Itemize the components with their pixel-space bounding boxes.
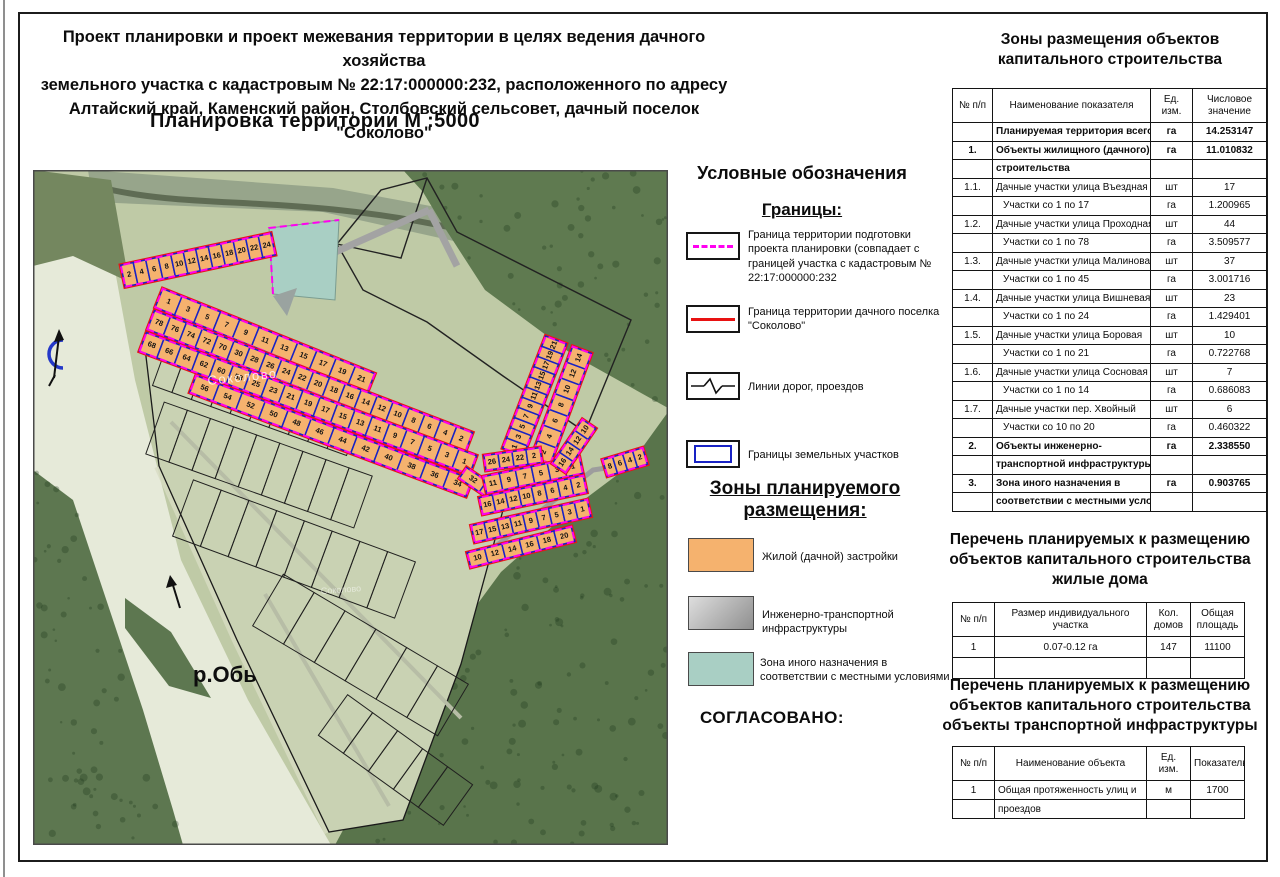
- table-cell: 6: [1193, 400, 1267, 419]
- table-cell: транспортной инфраструктуры: [993, 456, 1151, 475]
- table-cell: [1151, 160, 1193, 179]
- table-cell: Участки со 10 по 20: [993, 419, 1151, 438]
- table-cell: га: [1151, 234, 1193, 253]
- territory-map: 2468101214161820222413579111315171921787…: [33, 170, 668, 845]
- table-cell: [953, 197, 993, 216]
- transport-table: № п/пНаименование объектаЕд. изм.Показат…: [952, 746, 1245, 819]
- table-cell: 3.001716: [1193, 271, 1267, 290]
- table-row: Участки со 10 по 20га0.460322: [953, 419, 1267, 438]
- table-cell: Дачные участки улица Въездная: [993, 178, 1151, 197]
- table-cell: га: [1151, 345, 1193, 364]
- transport-table-title: Перечень планируемых к размещению объект…: [935, 676, 1265, 736]
- table-cell: [953, 456, 993, 475]
- table-cell: шт: [1151, 326, 1193, 345]
- settlement-boundary-symbol: [686, 305, 740, 333]
- map-canvas: 2468101214161820222413579111315171921787…: [33, 170, 668, 845]
- table-cell: га: [1151, 419, 1193, 438]
- table-cell: 7: [1193, 363, 1267, 382]
- other-purpose-zone: [269, 220, 339, 300]
- legend-boundaries-heading: Границы:: [672, 200, 932, 220]
- planning-boundary-symbol: [686, 232, 740, 260]
- table-cell: 2.: [953, 437, 993, 456]
- table-cell: га: [1151, 271, 1193, 290]
- table-row: строительства: [953, 160, 1267, 179]
- table-row: проездов: [953, 800, 1245, 819]
- settlement-boundary-label: Граница территории дачного поселка "Соко…: [748, 305, 953, 334]
- table-cell: проездов: [995, 800, 1147, 819]
- table-row: Участки со 1 по 78га3.509577: [953, 234, 1267, 253]
- column-header: Показатель: [1191, 747, 1245, 781]
- table-cell: 1: [953, 781, 995, 800]
- road-break-icon: [689, 374, 737, 398]
- blue-rect-icon: [694, 445, 732, 463]
- table-cell: [953, 271, 993, 290]
- table-cell: 23: [1193, 289, 1267, 308]
- table-cell: Объекты инженерно-: [993, 437, 1151, 456]
- table-row: транспортной инфраструктуры: [953, 456, 1267, 475]
- table-cell: Планируемая территория всего: [993, 123, 1151, 142]
- planning-boundary-label: Граница территории подготовки проекта пл…: [748, 228, 953, 285]
- table-cell: Участки со 1 по 45: [993, 271, 1151, 290]
- table-cell: [1147, 800, 1191, 819]
- column-header: Наименование объекта: [995, 747, 1147, 781]
- table-cell: [953, 493, 993, 512]
- zone-other-label: Зона иного назначения в соответствии с м…: [760, 656, 955, 685]
- column-header: № п/п: [953, 89, 993, 123]
- table-cell: м: [1147, 781, 1191, 800]
- zone-swatch-infrastructure: [688, 596, 754, 630]
- table-row: 10.07-0.12 га14711100: [953, 637, 1245, 658]
- table-cell: Участки со 1 по 78: [993, 234, 1151, 253]
- table-row: 1.7.Дачные участки пер. Хвойныйшт6: [953, 400, 1267, 419]
- table-row: 1.3.Дачные участки улица Малиноваяшт37: [953, 252, 1267, 271]
- table-cell: 3.: [953, 474, 993, 493]
- table-row: Участки со 1 по 17га1.200965: [953, 197, 1267, 216]
- column-header: Числовое значение: [1193, 89, 1267, 123]
- column-header: № п/п: [953, 747, 995, 781]
- parcel-number: 22: [515, 452, 525, 462]
- table-row: 3.Зона иного назначения вга0.903765: [953, 474, 1267, 493]
- table-cell: [1193, 493, 1267, 512]
- table-cell: 3.509577: [1193, 234, 1267, 253]
- river-label: р.Обь: [193, 662, 257, 687]
- table-cell: Участки со 1 по 14: [993, 382, 1151, 401]
- scan-edge-line: [3, 0, 5, 877]
- parcel-boundary-label: Границы земельных участков: [748, 448, 953, 462]
- column-header: Размер индивидуального участка: [995, 603, 1147, 637]
- table-cell: шт: [1151, 363, 1193, 382]
- table-cell: Общая протяженность улиц и: [995, 781, 1147, 800]
- table-cell: [1151, 456, 1193, 475]
- table-cell: 1.200965: [1193, 197, 1267, 216]
- table-row: Участки со 1 по 21га0.722768: [953, 345, 1267, 364]
- table-row: Участки со 1 по 14га0.686083: [953, 382, 1267, 401]
- table-cell: шт: [1151, 215, 1193, 234]
- table-cell: 17: [1193, 178, 1267, 197]
- table-cell: га: [1151, 308, 1193, 327]
- table-cell: 14.253147: [1193, 123, 1267, 142]
- table-row: 1.1.Дачные участки улица Въезднаяшт17: [953, 178, 1267, 197]
- table-cell: 0.903765: [1193, 474, 1267, 493]
- table-cell: 1.1.: [953, 178, 993, 197]
- table-cell: [1191, 800, 1245, 819]
- table-cell: 1.: [953, 141, 993, 160]
- table-row: 1.Объекты жилищного (дачного)га11.010832: [953, 141, 1267, 160]
- table-cell: 11.010832: [1193, 141, 1267, 160]
- table-cell: Участки со 1 по 21: [993, 345, 1151, 364]
- table-row: Участки со 1 по 24га1.429401: [953, 308, 1267, 327]
- houses-table-title: Перечень планируемых к размещению объект…: [935, 530, 1265, 590]
- table-cell: Дачные участки улица Проходная: [993, 215, 1151, 234]
- table-cell: 1.2.: [953, 215, 993, 234]
- column-header: Кол. домов: [1147, 603, 1191, 637]
- table-row: Планируемая территория всегога14.253147: [953, 123, 1267, 142]
- parcel-number: 26: [487, 456, 497, 466]
- table-cell: га: [1151, 141, 1193, 160]
- zones-heading: Зоны планируемого размещения:: [660, 478, 950, 522]
- table-cell: строительства: [993, 160, 1151, 179]
- houses-table: № п/пРазмер индивидуального участкаКол. …: [952, 602, 1245, 679]
- legend-heading: Условные обозначения: [672, 163, 932, 184]
- table-cell: [953, 419, 993, 438]
- red-line-icon: [691, 318, 735, 321]
- column-header: Наименование показателя: [993, 89, 1151, 123]
- table-cell: соответствии с местными условиями: [993, 493, 1151, 512]
- table-row: 1Общая протяженность улиц им1700: [953, 781, 1245, 800]
- table-row: 1.6.Дачные участки улица Сосноваяшт7: [953, 363, 1267, 382]
- table-cell: Дачные участки улица Боровая: [993, 326, 1151, 345]
- zone-swatch-other: [688, 652, 754, 686]
- table-cell: [953, 800, 995, 819]
- table-cell: 1.5.: [953, 326, 993, 345]
- zones-table: № п/пНаименование показателяЕд. изм.Числ…: [952, 88, 1267, 512]
- table-cell: Дачные участки улица Малиновая: [993, 252, 1151, 271]
- table-row: Участки со 1 по 45га3.001716: [953, 271, 1267, 290]
- table-cell: Дачные участки пер. Хвойный: [993, 400, 1151, 419]
- table-cell: шт: [1151, 289, 1193, 308]
- table-cell: 1.6.: [953, 363, 993, 382]
- zone-infrastructure-label: Инженерно-транспортной инфраструктуры: [762, 608, 967, 637]
- project-title-line1: Проект планировки и проект межевания тер…: [36, 26, 732, 74]
- project-title-line2: земельного участка с кадастровым № 22:17…: [36, 74, 732, 98]
- map-title: Планировка территории М :5000: [150, 110, 580, 133]
- table-cell: шт: [1151, 400, 1193, 419]
- table-row: 1.5.Дачные участки улица Бороваяшт10: [953, 326, 1267, 345]
- table-cell: 1.4.: [953, 289, 993, 308]
- table-cell: Дачные участки улица Вишневая: [993, 289, 1151, 308]
- column-header: № п/п: [953, 603, 995, 637]
- column-header: Общая площадь: [1191, 603, 1245, 637]
- table-cell: [1193, 160, 1267, 179]
- table-cell: [953, 234, 993, 253]
- table-cell: 1: [953, 637, 995, 658]
- table-cell: 11100: [1191, 637, 1245, 658]
- table-cell: Участки со 1 по 24: [993, 308, 1151, 327]
- table-row: 2.Объекты инженерно-га2.338550: [953, 437, 1267, 456]
- table-cell: 147: [1147, 637, 1191, 658]
- table-cell: 44: [1193, 215, 1267, 234]
- table-cell: [1151, 493, 1193, 512]
- column-header: Ед. изм.: [1147, 747, 1191, 781]
- roads-label: Линии дорог, проездов: [748, 380, 953, 394]
- table-row: соответствии с местными условиями: [953, 493, 1267, 512]
- table-cell: шт: [1151, 178, 1193, 197]
- table-cell: 0.722768: [1193, 345, 1267, 364]
- column-header: Ед. изм.: [1151, 89, 1193, 123]
- zone-swatch-residential: [688, 538, 754, 572]
- table-cell: га: [1151, 474, 1193, 493]
- table-cell: 0.460322: [1193, 419, 1267, 438]
- table-cell: [1193, 456, 1267, 475]
- table-cell: 1.429401: [1193, 308, 1267, 327]
- approved-label: СОГЛАСОВАНО:: [700, 708, 844, 728]
- table-cell: Объекты жилищного (дачного): [993, 141, 1151, 160]
- table-cell: Дачные участки улица Сосновая: [993, 363, 1151, 382]
- table-cell: 1.3.: [953, 252, 993, 271]
- parcel-boundary-symbol: [686, 440, 740, 468]
- table-cell: га: [1151, 123, 1193, 142]
- table-cell: [953, 345, 993, 364]
- table-row: 1.2.Дачные участки улица Проходнаяшт44: [953, 215, 1267, 234]
- table-cell: га: [1151, 197, 1193, 216]
- table-row: 1.4.Дачные участки улица Вишневаяшт23: [953, 289, 1267, 308]
- table-cell: га: [1151, 437, 1193, 456]
- table-cell: 37: [1193, 252, 1267, 271]
- table-cell: [953, 382, 993, 401]
- table-cell: га: [1151, 382, 1193, 401]
- table-cell: 1700: [1191, 781, 1245, 800]
- table-cell: 10: [1193, 326, 1267, 345]
- table-cell: шт: [1151, 252, 1193, 271]
- table-cell: Зона иного назначения в: [993, 474, 1151, 493]
- roads-symbol: [686, 372, 740, 400]
- table-cell: 0.07-0.12 га: [995, 637, 1147, 658]
- table-cell: [953, 308, 993, 327]
- plan-sheet: { "header": { "title_lines": [ "Проект п…: [0, 0, 1280, 877]
- table-cell: 2.338550: [1193, 437, 1267, 456]
- zones-table-title: Зоны размещения объектов капитального ст…: [955, 30, 1265, 70]
- table-cell: Участки со 1 по 17: [993, 197, 1151, 216]
- magenta-dashed-line-icon: [693, 245, 733, 248]
- table-cell: 0.686083: [1193, 382, 1267, 401]
- table-cell: [953, 123, 993, 142]
- table-cell: [953, 160, 993, 179]
- table-cell: 1.7.: [953, 400, 993, 419]
